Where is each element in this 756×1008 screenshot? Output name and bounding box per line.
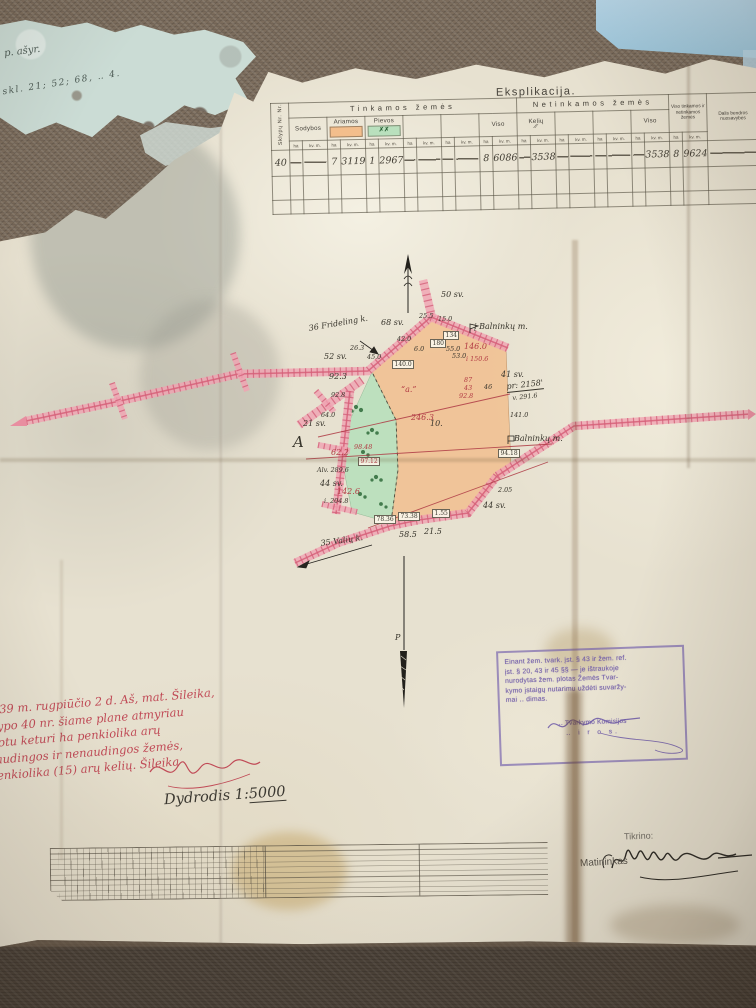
explication-table: Sklypų Nr. Nr. Tinkamos žemės Netinkamos…: [270, 92, 756, 215]
td: ha: [289, 141, 302, 151]
grid-dense-columns: [59, 846, 266, 900]
circle: [363, 495, 366, 498]
td: [593, 110, 632, 134]
td: [417, 173, 443, 198]
map-label: 21.5: [424, 527, 442, 536]
map-label: 68 sv.: [381, 318, 404, 327]
map-label: 1.55: [432, 509, 450, 518]
circle: [379, 502, 383, 506]
td: [404, 148, 418, 174]
tbody: Sklypų Nr. Nr. Tinkamos žemės Netinkamos…: [271, 92, 756, 214]
col-header-viso1: Viso: [479, 113, 518, 137]
map-label: 50 sv.: [441, 290, 464, 299]
td: [442, 147, 456, 173]
map-label: 26.3: [350, 344, 364, 352]
td: kv. m.: [302, 140, 327, 150]
td: [290, 176, 304, 200]
map-label: 180: [430, 339, 446, 348]
td: [417, 147, 443, 174]
td: [569, 170, 595, 195]
td: [670, 168, 684, 192]
td: [328, 175, 342, 199]
map-label: 25.5: [419, 312, 433, 320]
fold-stain: [566, 690, 582, 950]
map-label: 42.0: [397, 335, 411, 343]
td: 7: [328, 149, 342, 175]
map-label: Balninkų m.: [514, 434, 563, 443]
td: 1: [366, 148, 380, 174]
fold-crease: [0, 458, 756, 462]
col-header-pievos: Pievos✗✗: [365, 115, 404, 139]
td: [671, 191, 684, 205]
stamp-text: Einant žem. tvark. įst. § 43 ir žem. ref…: [504, 652, 678, 706]
div: Ariamos: [327, 118, 364, 126]
map-label: 43: [464, 384, 472, 392]
map-label: 45.0: [367, 353, 381, 361]
td: ha: [441, 137, 454, 147]
div: Pievos: [365, 117, 402, 125]
div: Sodybos: [290, 125, 327, 133]
td: [455, 172, 481, 197]
td: [493, 171, 519, 196]
map-label: “a.”: [401, 385, 417, 394]
td: kv. m.: [606, 133, 631, 143]
map-label: 140.0: [392, 360, 414, 369]
circle: [370, 428, 374, 432]
td: 3538: [531, 144, 557, 171]
td: [342, 199, 367, 214]
td: 8: [480, 146, 494, 172]
path: [612, 850, 736, 868]
road-arrow-tip-east: [748, 409, 756, 420]
map-label: 146.0: [464, 342, 487, 351]
map-label: 98.48: [354, 443, 372, 451]
td: [646, 192, 671, 207]
circle: [370, 478, 373, 481]
td: 3538: [645, 142, 671, 169]
map-label: 2.05: [498, 486, 512, 494]
td: [418, 197, 443, 212]
meadow-legend-swatch: ✗✗: [367, 125, 401, 137]
td: [380, 198, 405, 213]
td: 6086: [493, 145, 519, 172]
td: kv. m.: [644, 132, 669, 142]
map-label: A: [293, 433, 304, 451]
td: [404, 174, 418, 198]
td: [557, 194, 570, 208]
fragment-plot-numbers: skl. 21; 52; 68, ‥ 4.: [2, 69, 122, 98]
td: [632, 142, 646, 168]
td: [366, 174, 380, 198]
td: [329, 199, 342, 213]
map-label: 142.6: [337, 487, 360, 496]
photo-of-cadastral-plan: { "colors": { "paper": "#e7e1d0", "fabri…: [0, 0, 756, 1008]
map-label: 87: [464, 376, 472, 384]
td: [519, 195, 532, 209]
td: [341, 175, 367, 200]
map-label: Alv. 289.6: [317, 466, 349, 474]
td: [607, 143, 633, 170]
td: [555, 111, 594, 135]
td: ha: [365, 139, 378, 149]
map-label: 62.2: [331, 448, 349, 457]
td: [532, 194, 557, 209]
td: [379, 174, 405, 199]
td: [633, 192, 646, 206]
td: ha: [479, 136, 492, 146]
div: [265, 846, 267, 897]
td: [595, 193, 608, 207]
map-label: 94.18: [498, 449, 520, 458]
map-label: 10.: [430, 419, 443, 428]
td: [455, 146, 481, 173]
checked-by-label: Tikrino:: [624, 830, 654, 841]
td: [594, 143, 608, 169]
path: [640, 871, 738, 880]
col-header-share: Dalis bendros nuosavybės: [707, 92, 756, 141]
td: kv. m.: [454, 137, 479, 147]
div: ∕∕: [518, 124, 555, 130]
fragment-note-line: p. ašyr.: [3, 44, 40, 59]
td: kv. m.: [530, 135, 555, 145]
map-label: 21 sv.: [303, 419, 326, 428]
map-label: 92.8: [331, 391, 345, 399]
circle: [366, 431, 369, 434]
td: [443, 197, 456, 211]
td: [569, 144, 595, 171]
td: kv. m.: [568, 134, 593, 144]
td: [291, 200, 304, 214]
road-arrow-tip-west: [10, 416, 27, 426]
td: ha: [327, 140, 340, 150]
td: [405, 198, 418, 212]
td: [632, 168, 646, 192]
col-header-plot-nr: Sklypų Nr. Nr.: [271, 103, 290, 151]
td: kv. m.: [416, 137, 441, 147]
td: [645, 168, 671, 193]
td: [608, 193, 633, 208]
col-header-viso2: Viso: [631, 109, 670, 133]
td: [531, 170, 557, 195]
td: [708, 140, 756, 167]
td: [481, 196, 494, 210]
map-label: 64.0: [321, 411, 335, 419]
map-label: 53.0: [452, 352, 466, 360]
td: [273, 200, 291, 214]
map-label: i 150.6: [466, 355, 488, 363]
scale-value: 5000: [248, 784, 286, 804]
map-label: 92.8: [459, 392, 473, 400]
circle: [384, 505, 387, 508]
td: [570, 194, 595, 209]
td: 2967: [379, 148, 405, 175]
map-label: 44 sv.: [483, 501, 506, 510]
td: kv. m.: [378, 138, 403, 148]
td: [556, 170, 570, 194]
td: 3119: [341, 149, 367, 176]
plan-paper-sheet: 50 sv.68 sv.36 Frideling k.52 sv.92.342.…: [0, 52, 756, 954]
map-label: 15.0: [438, 315, 452, 323]
td: ha: [403, 138, 416, 148]
td: [709, 190, 756, 205]
map-label: i. 204.8: [324, 497, 348, 505]
torn-teal-paper-fragment: p. ašyr. skl. 21; 52; 68, ‥ 4.: [0, 20, 256, 142]
col-header-ariamos: Ariamos: [327, 116, 366, 140]
td: [303, 176, 329, 201]
td: [556, 144, 570, 170]
td: kv. m.: [340, 139, 365, 149]
td: [708, 166, 756, 191]
circle: [359, 408, 363, 412]
td: kv. m.: [492, 136, 517, 146]
circle: [374, 475, 378, 479]
col-header-keliu: Kelių∕∕: [517, 112, 556, 136]
td: ha: [631, 133, 644, 143]
td: [272, 176, 291, 200]
td: [290, 150, 304, 176]
td: [304, 200, 329, 215]
td: ha: [669, 132, 682, 142]
explication-table-grid: Sklypų Nr. Nr. Tinkamos žemės Netinkamos…: [270, 92, 756, 215]
td: [607, 169, 633, 194]
map-label: 92.3: [329, 372, 347, 381]
circle: [354, 405, 358, 409]
map-label: 6.0: [414, 345, 424, 353]
td: ha: [517, 135, 530, 145]
blank-ruled-grid: [50, 842, 549, 901]
official-stamp: Einant žem. tvark. įst. § 43 ir žem. ref…: [496, 645, 688, 766]
td: ha: [593, 134, 606, 144]
circle: [379, 478, 383, 482]
span: Sklypų Nr. Nr.: [277, 104, 284, 145]
map-label: į Balninkų m.: [474, 322, 528, 331]
td: [480, 172, 494, 196]
td: [403, 114, 442, 138]
fold-crease: [220, 62, 223, 950]
td: [594, 169, 608, 193]
td: 8: [670, 142, 684, 168]
map-label: 41 sv.: [501, 370, 524, 379]
arable-legend-swatch: [329, 126, 363, 138]
td: [367, 198, 380, 212]
map-label: 78.36: [374, 515, 396, 524]
col-header-sodybos: Sodybos: [289, 117, 328, 141]
path: [400, 651, 407, 708]
map-label: 58.5: [399, 530, 417, 539]
td: [456, 196, 481, 211]
td: [303, 150, 329, 177]
fold-crease: [687, 60, 690, 468]
map-label: 73.38: [398, 512, 420, 521]
div: [419, 845, 421, 896]
td: [442, 173, 456, 197]
fabric-bottom-strip: [0, 940, 756, 1008]
td: 40: [272, 150, 291, 176]
map-label: P: [395, 633, 400, 642]
td: ha: [555, 135, 568, 145]
td: [518, 145, 532, 171]
map-label: 46: [484, 383, 492, 391]
td: [518, 171, 532, 195]
circle: [375, 431, 379, 435]
map-label: 141.0: [510, 411, 528, 419]
sky-blue-background: [596, 0, 756, 58]
map-label: 52 sv.: [324, 352, 347, 361]
td: [441, 113, 480, 137]
paper-content: 50 sv.68 sv.36 Frideling k.52 sv.92.342.…: [0, 0, 756, 1008]
td: [494, 195, 519, 210]
fold-crease: [60, 560, 63, 860]
